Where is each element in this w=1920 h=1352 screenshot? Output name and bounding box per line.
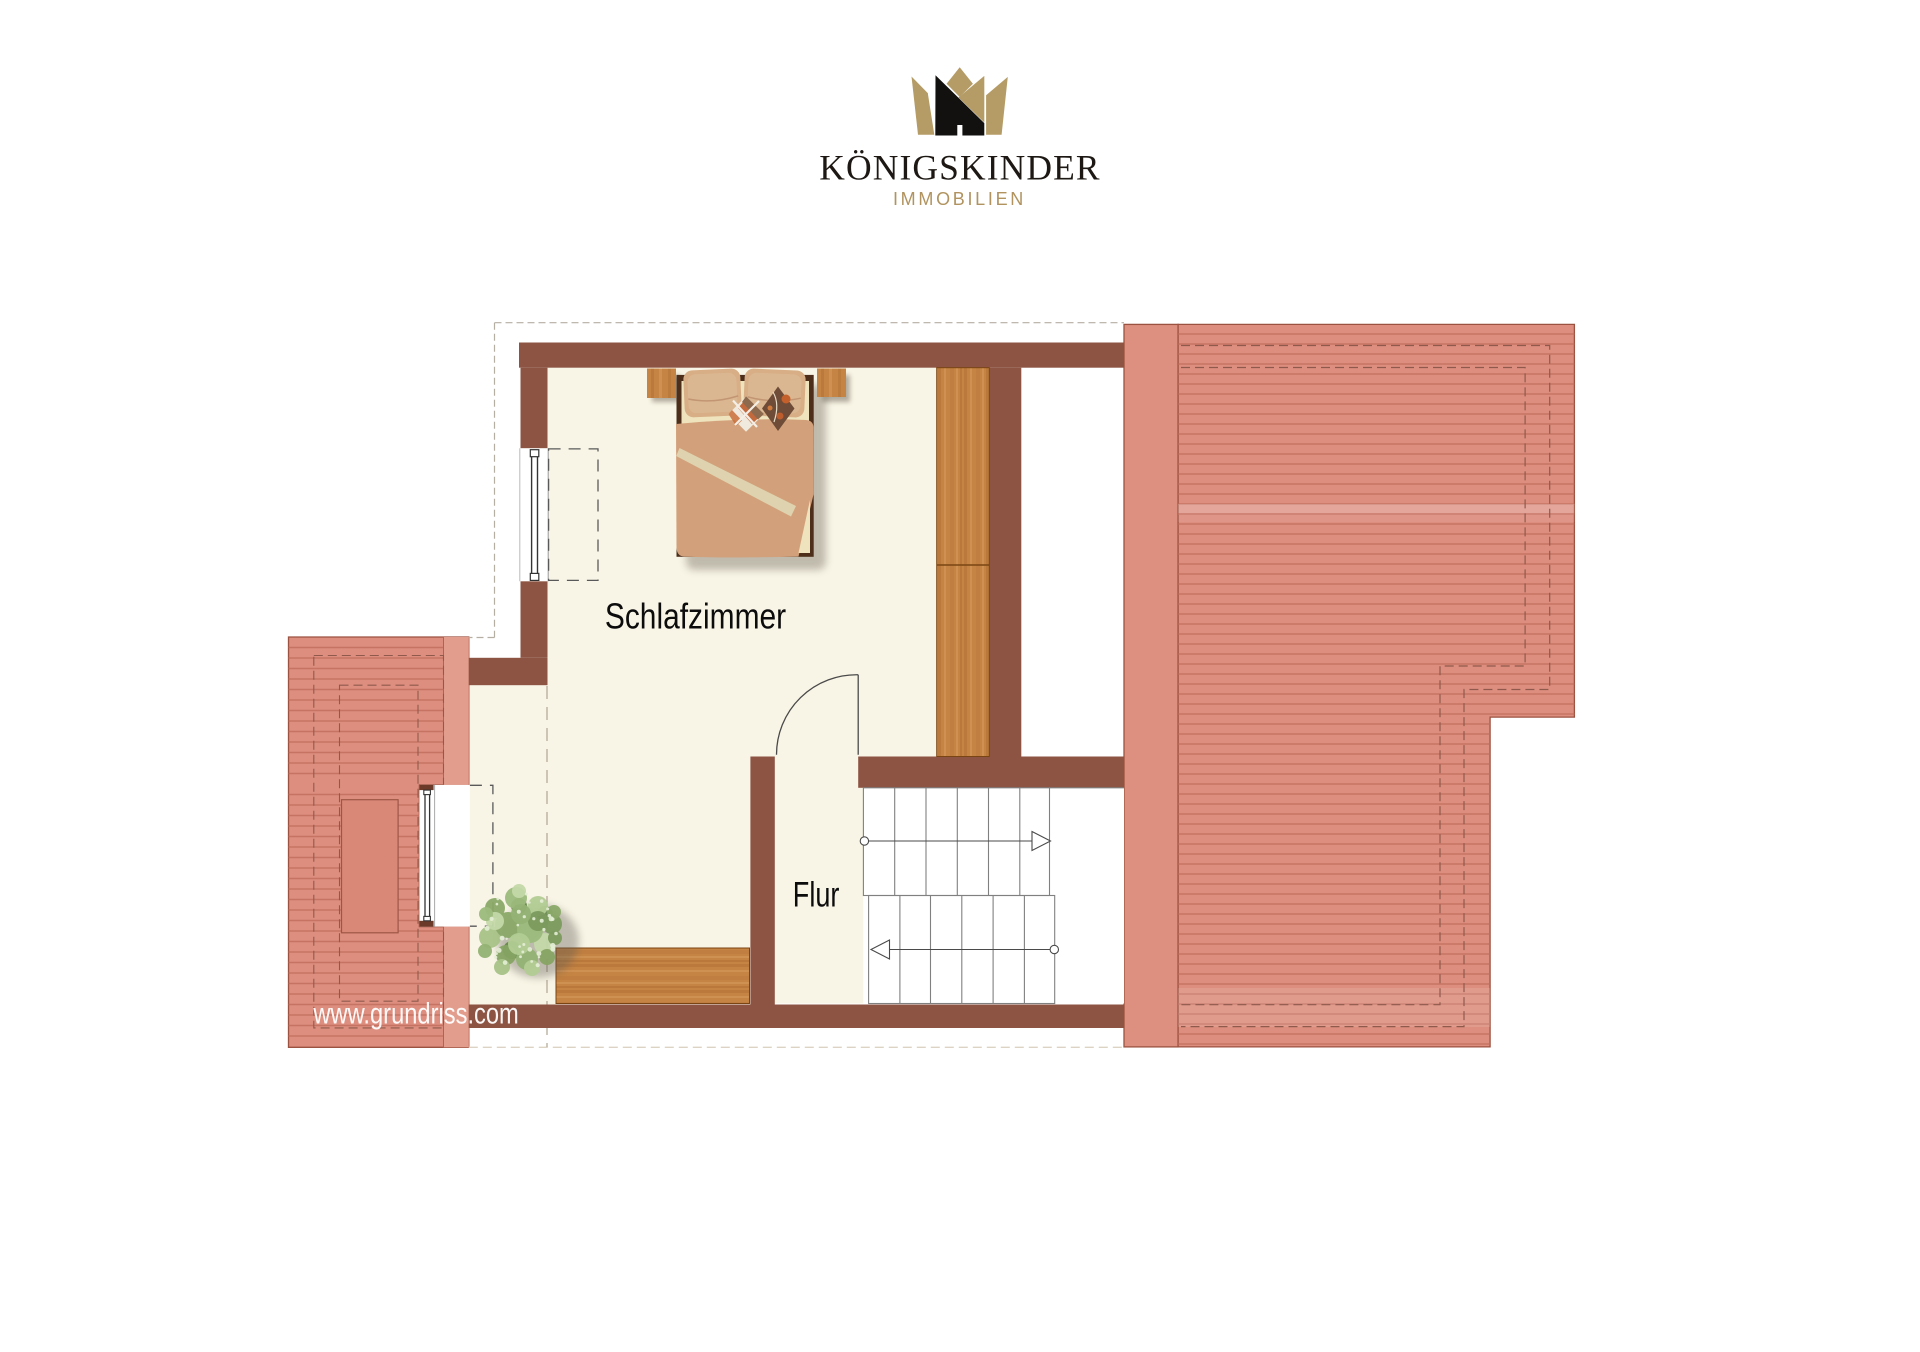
svg-text:Schlafzimmer: Schlafzimmer	[605, 595, 786, 636]
svg-text:IMMOBILIEN: IMMOBILIEN	[893, 189, 1026, 209]
svg-text:Flur: Flur	[793, 874, 840, 914]
svg-text:KÖNIGSKINDER: KÖNIGSKINDER	[819, 148, 1100, 188]
svg-text:www.grundriss.com: www.grundriss.com	[313, 998, 519, 1031]
